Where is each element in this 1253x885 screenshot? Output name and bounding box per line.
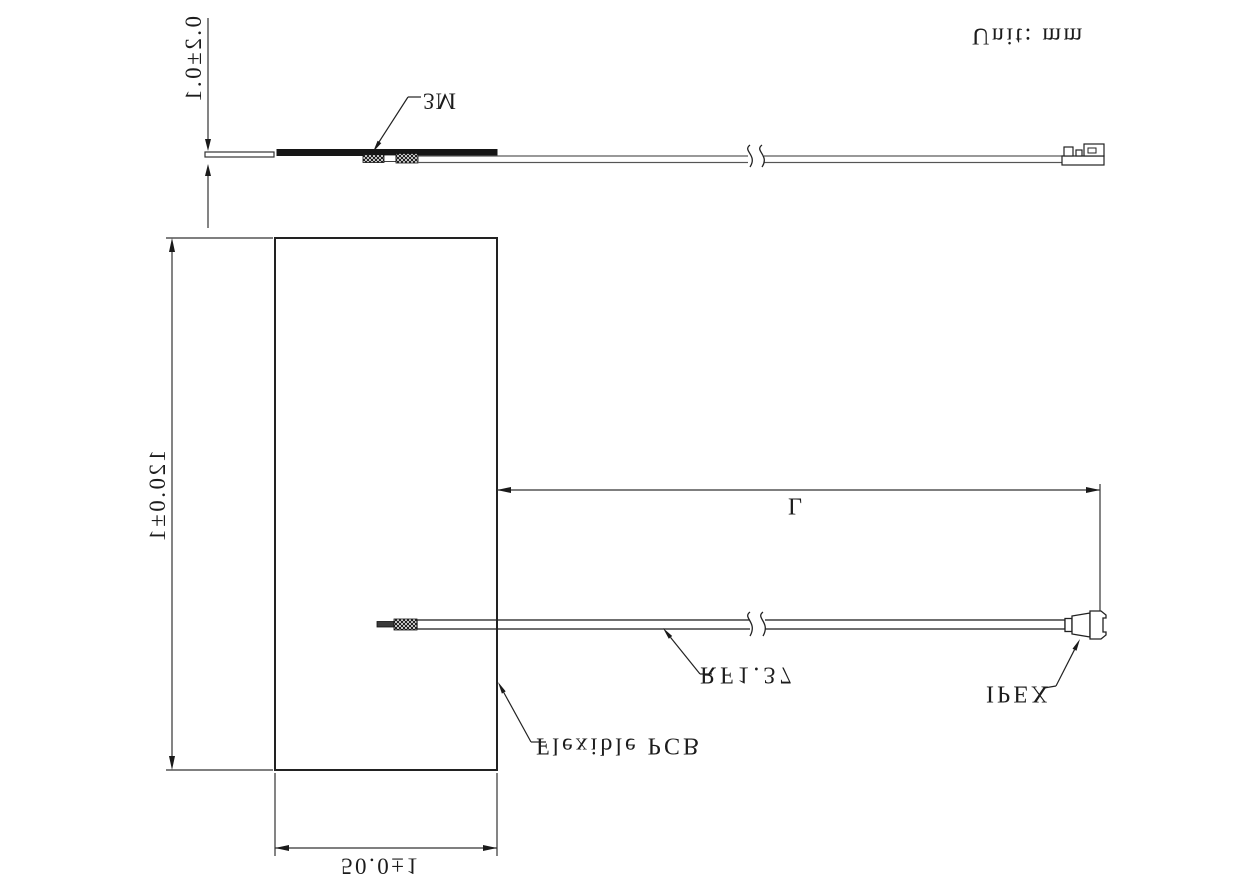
board-label: Flexible PCB [536,732,702,758]
width-dimension-label: 50.0±1 [341,853,420,878]
pcb-outline [275,238,497,770]
height-dimension [166,238,273,770]
thickness-dimension-label: 0.2±0.1 [181,16,206,104]
length-dimension-label: L [788,492,805,518]
coax-cable-side [418,145,1063,167]
width-dimension [275,773,497,856]
ipex-connector-front [1065,611,1106,639]
ipex-connector-side [1062,144,1104,165]
unit-label: Unit: mm [972,22,1085,48]
cable-label: RF1.37 [700,661,795,687]
tape-label: 3M [423,88,457,113]
leader-arrowhead [498,682,506,694]
cable-joint-side [363,154,418,164]
tape-leader [373,97,421,152]
side-view [205,18,1104,228]
front-view [166,238,1106,856]
leader-arrowhead [1073,639,1081,651]
height-dimension-label: 120.0±1 [145,450,170,543]
coax-cable-front [377,612,1065,636]
connector-label: IPEX [986,680,1051,706]
cable-tip [377,622,394,628]
cable-joint-front [394,619,417,630]
technical-drawing: Unit: mm 3M 0.2±0.1 120.0±1 50.0±1 L RF1… [0,0,1253,885]
